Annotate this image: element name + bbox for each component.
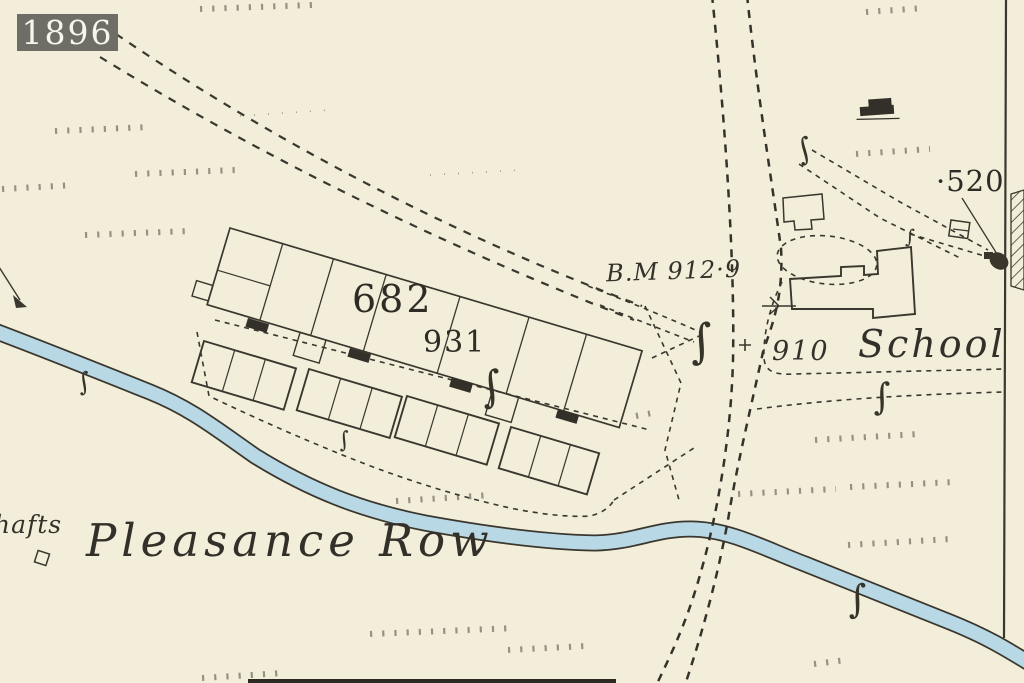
porch-left — [192, 281, 213, 301]
gate-mark-2 — [984, 252, 993, 259]
spot-height-520: ·520 — [936, 167, 1005, 196]
shaft-diamond — [34, 550, 49, 565]
small-outbuilding-520 — [949, 220, 970, 238]
spot-height-910: 910 — [772, 338, 830, 365]
road-edge-line — [1004, 0, 1006, 638]
parcel-number-682: 682 — [352, 280, 434, 318]
school-building — [762, 247, 915, 318]
sluice-symbol: ∫ — [686, 313, 715, 369]
roadside-hatched-strip — [1011, 190, 1024, 290]
shafts-label-partial: hafts — [0, 512, 62, 537]
black-building — [855, 97, 899, 121]
school-label: School — [858, 325, 1006, 363]
pleasance-row-label: Pleasance Row — [86, 518, 494, 563]
historic-map-1896: ∫ ∫ ∫ ∫ ∫ ∫ ∫ ∫ 682 931 B.M 912·9 910 Sc… — [0, 0, 1024, 683]
small-hatched-building — [783, 194, 824, 230]
sluice-symbol: ∫ — [476, 360, 506, 412]
benchmark-label: B.M 912·9 — [606, 257, 742, 286]
annex-1 — [293, 332, 326, 363]
sluice-symbol: ∫ — [905, 226, 915, 248]
arrow-line — [0, 256, 20, 300]
map-edge-bar — [248, 679, 616, 683]
parcel-number-931: 931 — [423, 328, 486, 358]
track-line-upper — [116, 34, 642, 306]
arrow-head — [13, 295, 27, 308]
year-badge: 1896 — [17, 14, 118, 51]
plus-mark — [739, 339, 751, 351]
hatched-terrace-houses — [192, 341, 599, 494]
sluice-symbol: ∫ — [871, 376, 893, 418]
sluice-symbol: ∫ — [337, 427, 352, 453]
sluice-symbol: ∫ — [846, 576, 869, 621]
